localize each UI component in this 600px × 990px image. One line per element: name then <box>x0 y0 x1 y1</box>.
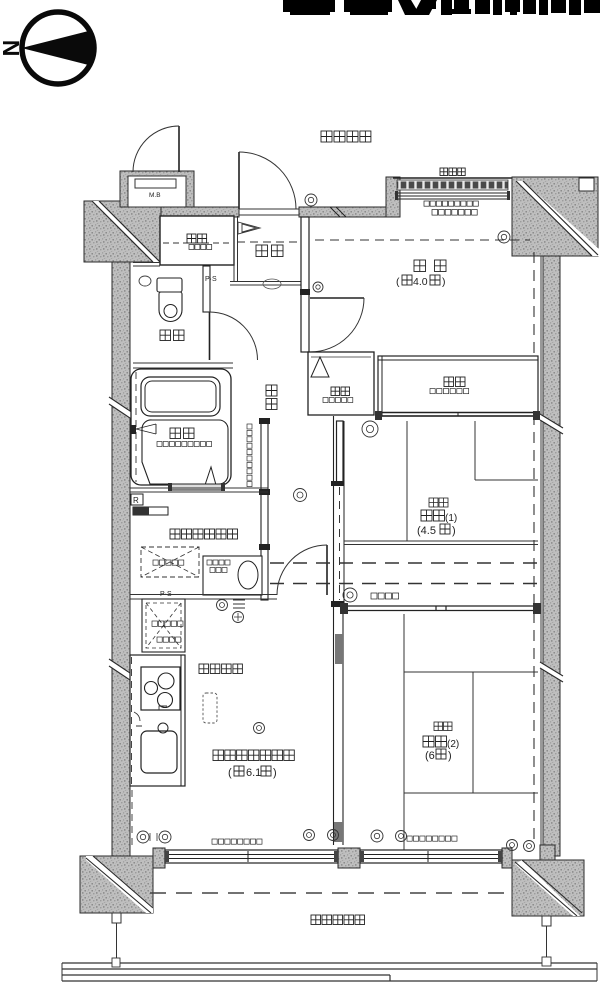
svg-text:(: ( <box>228 767 232 779</box>
svg-text:4.0: 4.0 <box>413 276 428 288</box>
svg-text:(2): (2) <box>447 739 459 750</box>
svg-text:N: N <box>0 40 24 57</box>
svg-text:): ) <box>273 767 277 779</box>
svg-text:): ) <box>442 276 446 288</box>
svg-text:(6: (6 <box>425 750 435 762</box>
svg-text:(: ( <box>396 276 400 288</box>
svg-text:): ) <box>452 525 456 537</box>
svg-text:(4.5: (4.5 <box>417 525 436 537</box>
svg-text:6.1: 6.1 <box>246 767 261 779</box>
svg-text:(1): (1) <box>445 513 457 524</box>
svg-text:R: R <box>133 496 139 505</box>
svg-text:P·S: P·S <box>205 276 217 283</box>
svg-text:M.B: M.B <box>149 192 161 199</box>
svg-text:): ) <box>448 750 452 762</box>
